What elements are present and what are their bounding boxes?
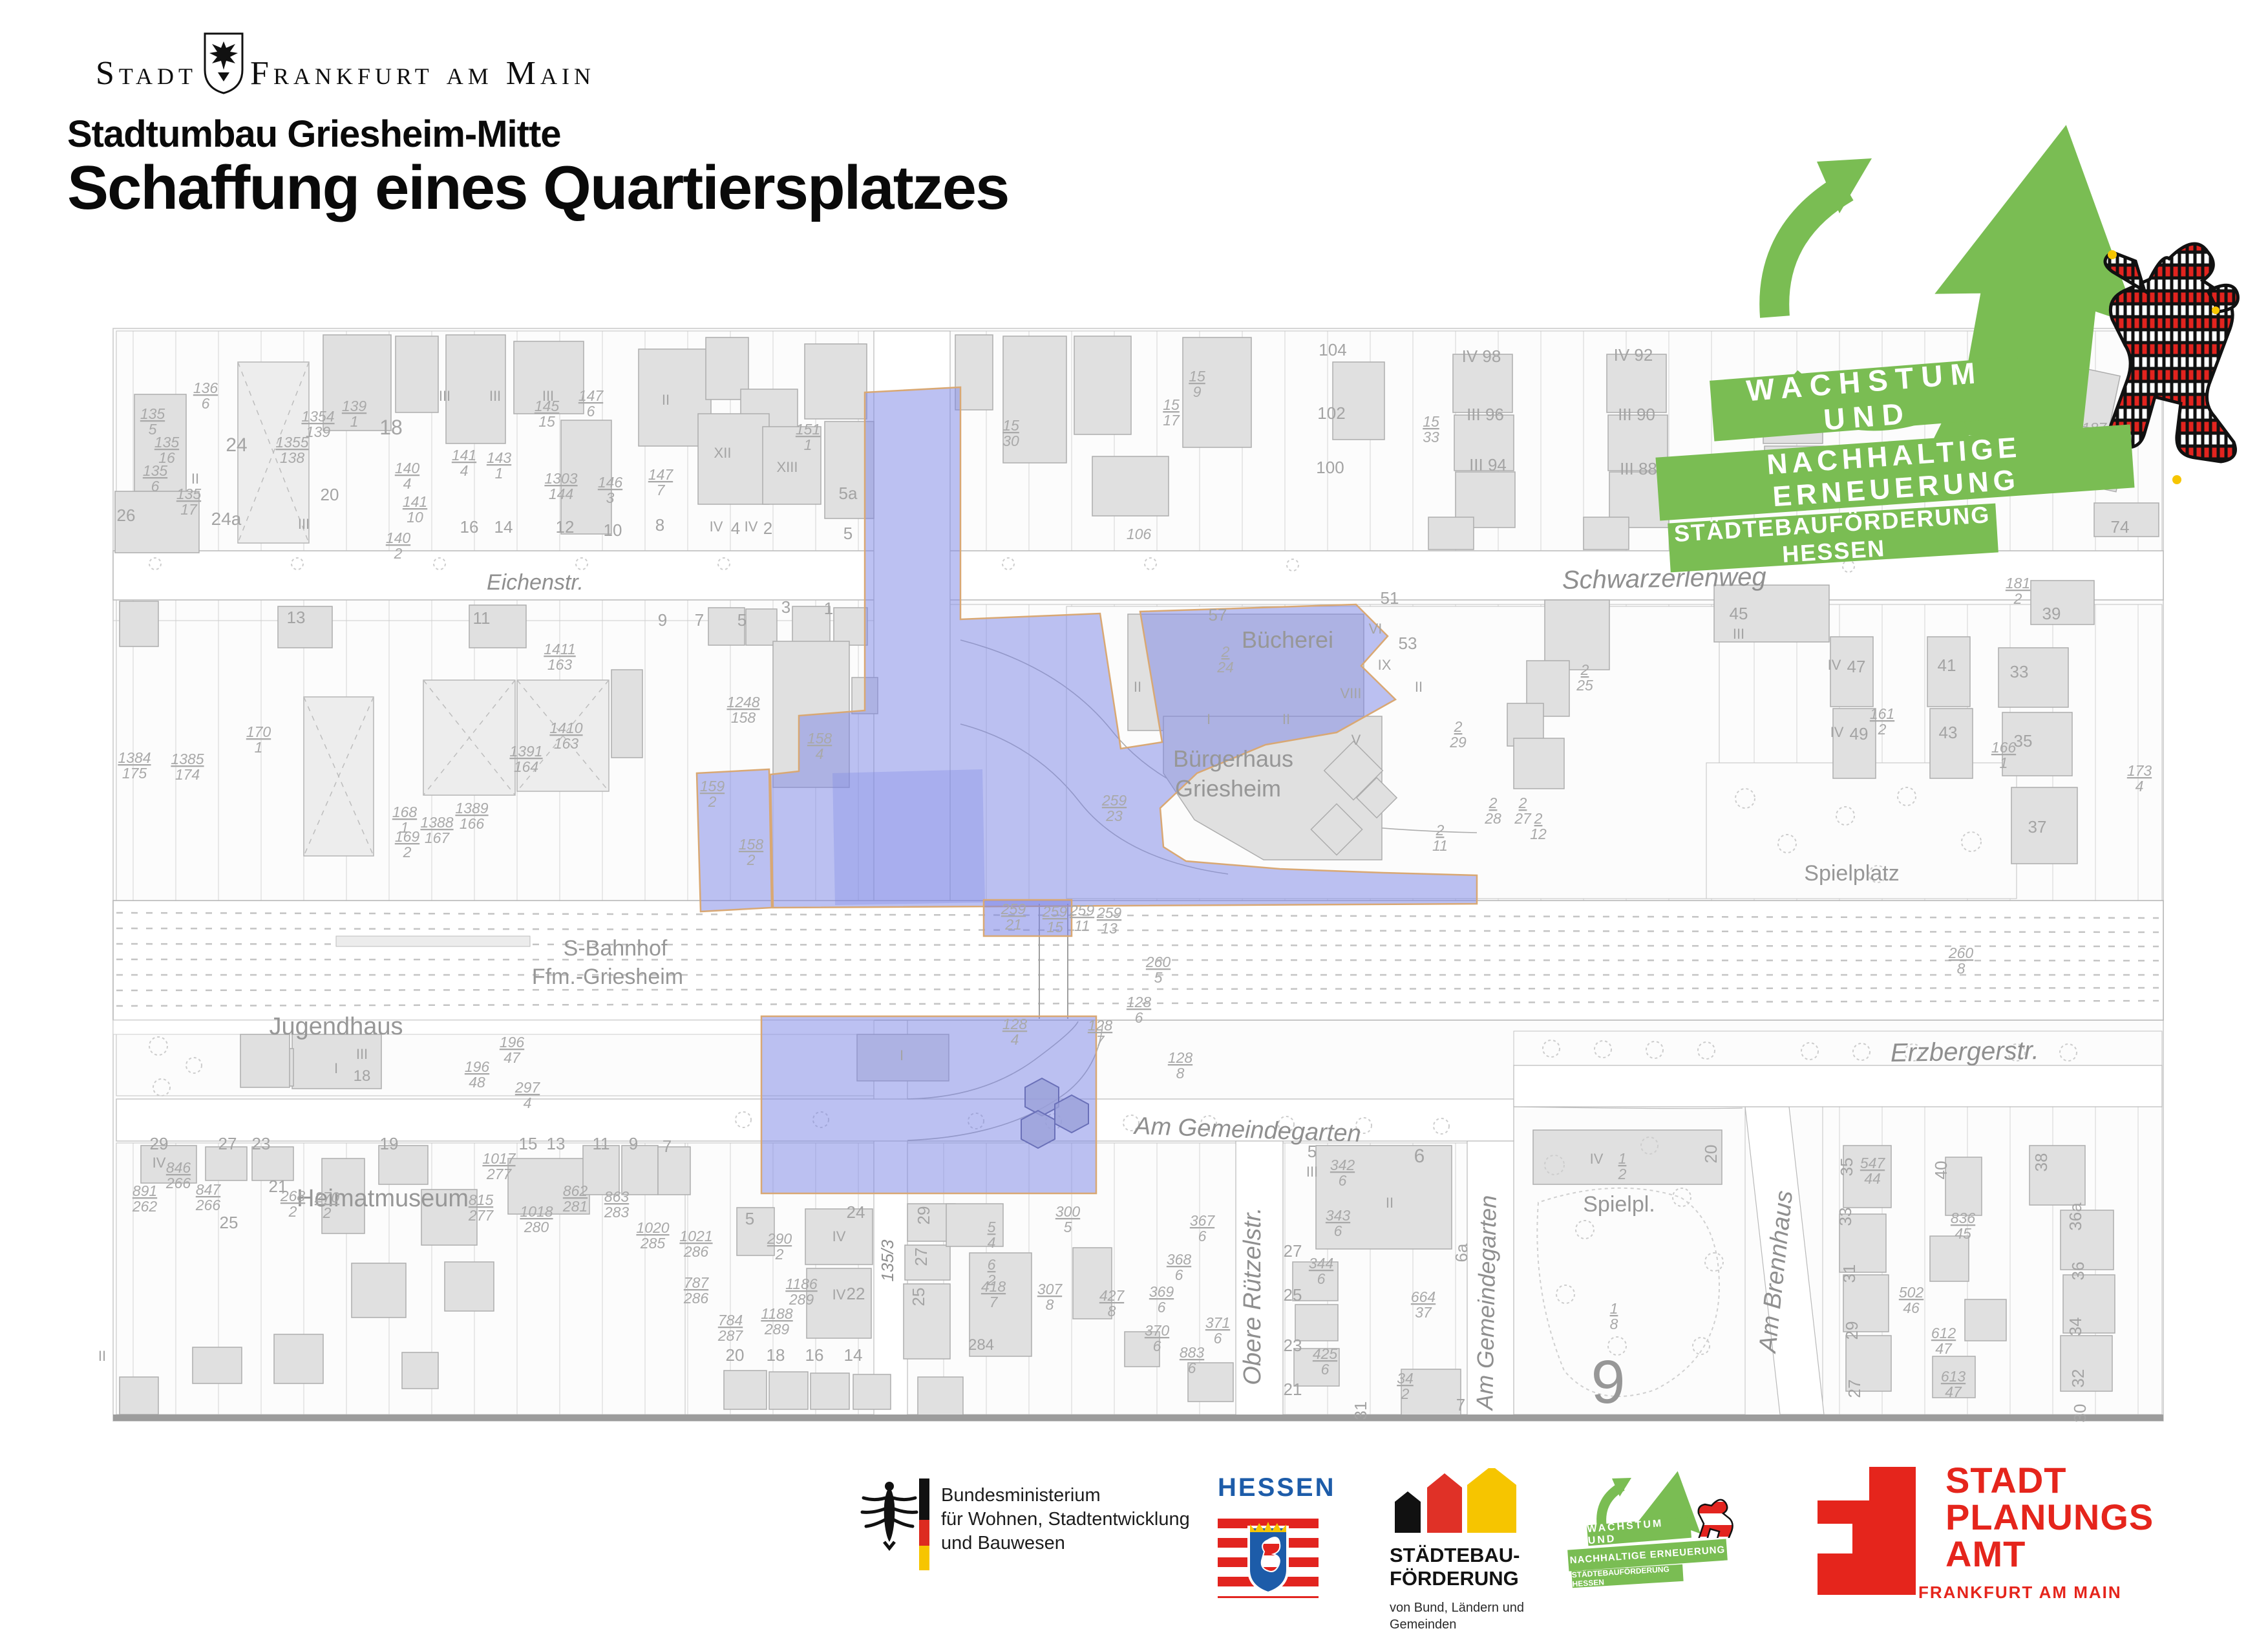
housenumber-label: 6a	[1452, 1243, 1471, 1262]
housenumber-label: 30	[2070, 1404, 2090, 1423]
ministry-text: Bundesministerium für Wohnen, Stadtentwi…	[941, 1478, 1190, 1555]
parcel-label: 54	[988, 1219, 996, 1251]
parcel-label: 1018280	[520, 1203, 553, 1235]
flag-bar-icon	[919, 1478, 929, 1570]
housenumber-label: 35	[2014, 731, 2033, 751]
parcel-label: 1384175	[118, 749, 151, 782]
housenumber-label: 23	[1284, 1336, 1302, 1355]
city-logo: Stadt Frankfurt am Main	[96, 32, 595, 93]
housenumber-label: 36a	[2066, 1202, 2085, 1231]
place-label: Griesheim	[1175, 775, 1281, 802]
street-label: Eichenstr.	[487, 570, 584, 595]
housenumber-label: IV	[1830, 724, 1844, 740]
housenumber-label: 18	[379, 416, 403, 439]
housenumber-label: 26	[117, 506, 136, 525]
housenumber-label: 31	[1839, 1265, 1859, 1283]
housenumber-label: 39	[2042, 604, 2061, 623]
staedtebaufoerderung-logo: STÄDTEBAU- FÖRDERUNG von Bund, Ländern u…	[1390, 1468, 1545, 1633]
housenumber-label: 100	[1316, 458, 1344, 477]
housenumber-label: III	[542, 388, 554, 404]
housenumber-label: 53	[1399, 634, 1417, 653]
housenumber-label: 7	[695, 610, 704, 630]
housenumber-label: 24a	[211, 509, 242, 529]
housenumber-label: III	[489, 388, 501, 404]
parcel-label: 1017277	[482, 1150, 516, 1182]
housenumber-label: 10	[604, 520, 622, 540]
street-label: Erzbergerstr.	[1891, 1036, 2039, 1067]
housenumber-label: IV	[1828, 657, 1841, 673]
place-label: Bücherei	[1242, 626, 1333, 653]
housenumber-label: 31	[1351, 1402, 1370, 1420]
hessen-logo: HESSEN	[1218, 1473, 1319, 1601]
place-label: Bürgerhaus	[1173, 745, 1293, 772]
place-label: S-Bahnhof	[564, 936, 668, 961]
housenumber-label: I	[900, 1047, 904, 1063]
housenumber-label: 25	[1284, 1285, 1302, 1305]
parcel-label: 1391164	[509, 743, 542, 775]
housenumber-label: VI	[1369, 621, 1383, 637]
parcel-label: 891262	[132, 1182, 158, 1215]
street-label: Am Gemeindegarten	[1471, 1195, 1501, 1411]
place-label: Spielpl.	[1583, 1192, 1655, 1217]
housenumber-label: 40	[1931, 1161, 1951, 1180]
parcel-label: 847266	[195, 1181, 222, 1213]
housenumber-label: 104	[1319, 340, 1346, 359]
street-label: 135/3	[878, 1239, 897, 1282]
housenumber-label: 3	[781, 597, 790, 617]
parcel-label: 1530	[1002, 417, 1019, 449]
housenumber-label: 9	[658, 610, 667, 630]
frankfurt-crest-icon	[204, 32, 244, 94]
housenumber-label: IV 98	[1462, 347, 1501, 366]
housenumber-label: 57	[1209, 605, 1227, 624]
housenumber-label: V	[1351, 732, 1361, 748]
housenumber-label: 51	[1381, 588, 1399, 608]
housenumber-label: 33	[2010, 662, 2029, 681]
housenumber-label: II	[1282, 711, 1290, 727]
housenumber-label: 22	[847, 1284, 865, 1303]
housenumber-label: 38	[2031, 1153, 2051, 1172]
parcel-label: 784287	[717, 1312, 744, 1344]
housenumber-label: 4	[731, 518, 740, 538]
housenumber-label: 5	[1308, 1142, 1317, 1161]
housenumber-label: 33	[1836, 1208, 1855, 1226]
housenumber-label: 284	[968, 1336, 994, 1354]
housenumber-label: 2	[763, 518, 772, 538]
housenumber-label: 14	[844, 1345, 863, 1365]
housenumber-label: IV	[710, 518, 723, 535]
housenumber-label: 16	[460, 517, 479, 537]
housenumber-label: 18	[767, 1345, 785, 1365]
housenumber-label: IV	[745, 518, 758, 535]
housenumber-label: III	[439, 388, 450, 404]
federal-eagle-icon	[860, 1478, 919, 1569]
housenumber-label: 35	[1837, 1158, 1856, 1177]
housenumber-label: I	[334, 1060, 338, 1076]
housenumber-label: 5	[745, 1209, 754, 1228]
parcel-label: 1186289	[785, 1275, 818, 1308]
parcel-label: 787286	[683, 1274, 710, 1307]
housenumber-label: 45	[1730, 604, 1748, 623]
staedtebau-subtext: von Bund, Ländern und Gemeinden	[1390, 1599, 1545, 1633]
poster-title: Schaffung eines Quartiersplatzes	[67, 155, 1008, 222]
hessen-wordmark: HESSEN	[1218, 1473, 1319, 1502]
housenumber-label: 13	[547, 1134, 566, 1153]
housenumber-label: 43	[1939, 723, 1958, 742]
housenumber-label: II	[1386, 1195, 1394, 1211]
housenumber-label: VIII	[1340, 685, 1361, 701]
parcel-label: 862281	[562, 1182, 588, 1215]
parcel-label: 106	[1127, 526, 1152, 542]
housenumber-label: XIII	[776, 459, 798, 475]
housenumber-label: 18	[354, 1067, 371, 1085]
housenumber-label: 27	[1284, 1241, 1302, 1261]
ministry-logo: Bundesministerium für Wohnen, Stadtentwi…	[860, 1478, 1190, 1570]
parcel-label: 1411163	[544, 641, 575, 673]
stadtplanungsamt-logo: STADT PLANUNGS AMT FRANKFURT AM MAIN	[1815, 1462, 2154, 1603]
parcel-label: 1385174	[171, 751, 204, 783]
housenumber-label: 5a	[839, 484, 858, 503]
parcel-label: 1410163	[549, 720, 582, 752]
housenumber-label: 6	[1414, 1146, 1425, 1167]
housenumber-label: 41	[1938, 656, 1956, 675]
staedtebau-text: STÄDTEBAU- FÖRDERUNG	[1390, 1544, 1545, 1590]
housenumber-label: IX	[1378, 657, 1392, 673]
housenumber-label: 21	[269, 1177, 288, 1196]
city-logo-name: Frankfurt am Main	[250, 57, 595, 93]
housenumber-label: III 96	[1467, 405, 1504, 424]
footer-logos: Bundesministerium für Wohnen, Stadtentwi…	[0, 1458, 2268, 1603]
poster-subtitle: Stadtumbau Griesheim-Mitte	[67, 115, 1008, 155]
parcel-label: 846266	[165, 1159, 191, 1191]
place-label: Ffm.-Griesheim	[532, 965, 683, 989]
program-logo: WACHSTUM UND NACHHALTIGE ERNEUERUNG STÄD…	[1652, 97, 2268, 595]
housenumber-label: 27	[1845, 1380, 1864, 1398]
place-label: 9	[1591, 1348, 1626, 1416]
housenumber-label: 47	[1847, 657, 1866, 676]
housenumber-label: 20	[726, 1345, 745, 1365]
parcel-label: 1517	[1163, 396, 1180, 429]
wachstum-small-logo: WACHSTUM UND NACHHALTIGE ERNEUERUNG STÄD…	[1550, 1467, 1750, 1596]
housenumber-label: 11	[473, 608, 491, 628]
housenumber-label: 20	[321, 485, 339, 504]
parcel-label: 815277	[468, 1191, 494, 1224]
parcel-label: 1303144	[544, 470, 577, 502]
parcel-label: 1188289	[761, 1305, 793, 1338]
housenumber-label: 20	[1701, 1145, 1721, 1164]
housenumber-label: II	[98, 1348, 106, 1364]
place-label: Spielplatz	[1804, 861, 1899, 886]
place-label: Jugendhaus	[269, 1013, 403, 1040]
housenumber-label: 49	[1850, 724, 1869, 743]
housenumber-label: III 94	[1469, 455, 1507, 475]
housenumber-label: IV	[153, 1155, 166, 1171]
housenumber-label: IV	[832, 1228, 846, 1244]
housenumber-label: 102	[1317, 403, 1345, 423]
title-block: Stadtumbau Griesheim-Mitte Schaffung ein…	[67, 115, 1008, 222]
housenumber-label: II	[662, 392, 670, 408]
housenumber-label: 21	[1284, 1380, 1302, 1399]
parcel-label: 863283	[604, 1188, 630, 1221]
housenumber-label: 27	[911, 1248, 931, 1266]
housenumber-label: I	[1207, 711, 1211, 727]
housenumber-label: 14	[494, 517, 513, 537]
houses-icon	[1390, 1468, 1516, 1533]
housenumber-label: III	[356, 1046, 368, 1062]
housenumber-label: 19	[380, 1134, 399, 1153]
parcel-label: 1020285	[636, 1219, 669, 1252]
housenumber-label: III	[1733, 626, 1744, 642]
housenumber-label: XII	[714, 445, 732, 461]
housenumber-label: 16	[805, 1345, 824, 1365]
housenumber-label: III	[298, 516, 310, 532]
housenumber-label: 12	[556, 517, 575, 537]
housenumber-label: 13	[287, 608, 306, 627]
parcel-label: 1021286	[679, 1228, 712, 1260]
parcel-label: 1389166	[455, 800, 488, 832]
housenumber-label: 8	[655, 515, 664, 535]
parcel-label: 1248158	[726, 694, 759, 726]
housenumber-label: 25	[909, 1288, 928, 1307]
housenumber-label: II	[1134, 679, 1141, 695]
housenumber-label: II	[1415, 679, 1423, 695]
parcel-label: 12	[1618, 1150, 1627, 1182]
parcel-label: 1533	[1423, 413, 1439, 445]
housenumber-label: III	[1306, 1164, 1318, 1180]
housenumber-label: 24	[226, 434, 247, 456]
hessen-flag-icon	[1218, 1509, 1319, 1598]
housenumber-label: 32	[2068, 1369, 2088, 1388]
street-label: Obere Rützelstr.	[1239, 1207, 1266, 1385]
parcel-label: 1388167	[420, 814, 453, 846]
zone-overlap-parcel	[832, 769, 985, 905]
housenumber-label: 29	[150, 1134, 169, 1153]
housenumber-label: 27	[218, 1134, 237, 1153]
housenumber-label: 23	[252, 1134, 271, 1153]
housenumber-label: 36	[2068, 1262, 2088, 1281]
housenumber-label: 25	[220, 1213, 238, 1232]
housenumber-label: 29	[1842, 1321, 1861, 1340]
parcel-label: 1355138	[275, 434, 308, 466]
housenumber-label: 11	[593, 1134, 610, 1153]
housenumber-label: 9	[629, 1134, 638, 1153]
housenumber-label: 34	[2066, 1318, 2085, 1336]
housenumber-label: III 90	[1618, 405, 1655, 424]
housenumber-label: 24	[847, 1202, 865, 1222]
planungsamt-text: STADT PLANUNGS AMT	[1945, 1462, 2154, 1572]
housenumber-label: IV	[832, 1286, 846, 1303]
parcel-label: 18	[1610, 1300, 1618, 1332]
housenumber-label: 15	[519, 1134, 538, 1153]
poster-page: { "header": { "agency_small": "Stadt", "…	[0, 0, 2268, 1603]
city-logo-stadt: Stadt	[96, 57, 197, 93]
housenumber-label: 29	[914, 1206, 933, 1225]
planungsamt-subtext: FRANKFURT AM MAIN	[1918, 1583, 2154, 1603]
map-bottom-edge	[113, 1414, 2163, 1421]
housenumber-label: IV	[1590, 1151, 1604, 1167]
housenumber-label: 5	[843, 524, 853, 543]
planungsamt-mark-icon	[1815, 1462, 1918, 1599]
housenumber-label: 7	[1456, 1395, 1465, 1414]
housenumber-label: 7	[662, 1137, 672, 1156]
housenumber-label: IV 92	[1614, 345, 1653, 365]
housenumber-label: 5	[737, 610, 747, 630]
housenumber-label: 37	[2028, 817, 2047, 837]
housenumber-label: 1	[824, 599, 833, 618]
housenumber-label: II	[191, 471, 199, 487]
